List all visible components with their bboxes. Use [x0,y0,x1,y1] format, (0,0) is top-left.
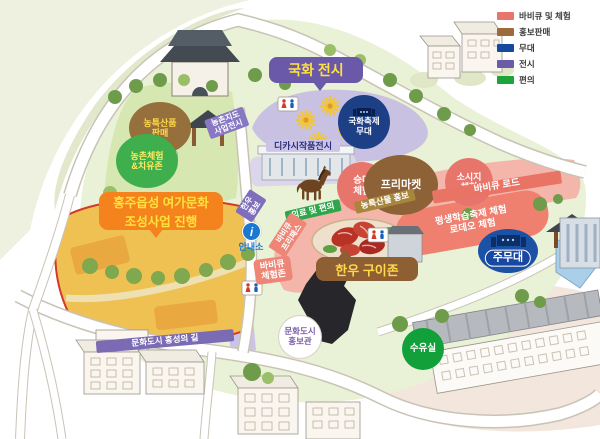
band-bbq-experience-zone: 바비큐 체험존 [253,255,293,285]
legend-label: 바비큐 및 체험 [519,10,571,22]
legend-item: 전시 [497,56,571,72]
callout-text: 한우 구이존 [335,260,398,279]
marker-mum-festival-stage: 국화축제 무대 [338,95,390,149]
info-icon: i [242,222,261,241]
legend-item: 바비큐 및 체험 [497,8,571,24]
legend-item: 편의 [497,72,571,88]
marker-nursing-room: 수유실 [402,328,444,370]
legend-swatch [497,60,514,68]
legend-swatch [497,28,514,36]
band-bbq-freepass: 바비큐 프리패스 [268,212,308,258]
callout-text: 국화 전시 [288,60,343,80]
marker-culture-city-hall: 문화도시 홍보관 [279,316,321,358]
callout-tail [338,249,352,258]
festival-map: 바비큐 및 체험 홍보판매 무대 전시 편의 국화 전시 홍주읍성 여가문화 조… [0,0,600,439]
labels-layer: 바비큐 및 체험 홍보판매 무대 전시 편의 국화 전시 홍주읍성 여가문화 조… [0,0,600,439]
band-dikasi-exhibit: 디카시작품전시 [266,140,340,152]
info-booth-label: 안내소 [239,242,264,252]
band-nongchon-jido: 농촌지도 사업전시 [204,106,250,139]
legend-label: 편의 [519,74,535,86]
text-lifelong-learning: 평생학습축제 체험 로데오 체험 [434,205,509,239]
callout-tail [149,229,163,238]
main-stage-label: 주무대 [485,250,531,267]
legend-swatch [497,44,514,52]
legend-label: 무대 [519,42,535,54]
info-glyph: i [250,225,253,239]
callout-hongju-project: 홍주읍성 여가문화 조성사업 진행 [99,192,223,230]
legend-label: 홍보판매 [519,26,550,38]
band-hanwoo-promo: 한우 홍보 [235,189,267,223]
marker-text: 국화축제 무대 [348,117,379,137]
marker-nongchon-healing: 농촌체험 &치유존 [116,134,178,188]
legend-item: 홍보판매 [497,24,571,40]
legend-item: 무대 [497,40,571,56]
callout-tail [313,82,327,91]
callout-hanwoo-grill: 한우 구이존 [316,257,418,281]
legend-swatch [497,12,514,20]
legend: 바비큐 및 체험 홍보판매 무대 전시 편의 [497,8,571,88]
legend-swatch [497,76,514,84]
legend-label: 전시 [519,58,535,70]
band-culture-city-road: 문화도시 홍성의 길 [96,329,235,353]
callout-text: 홍주읍성 여가문화 조성사업 진행 [113,192,208,230]
callout-gukhwa-exhibit: 국화 전시 [269,57,363,83]
